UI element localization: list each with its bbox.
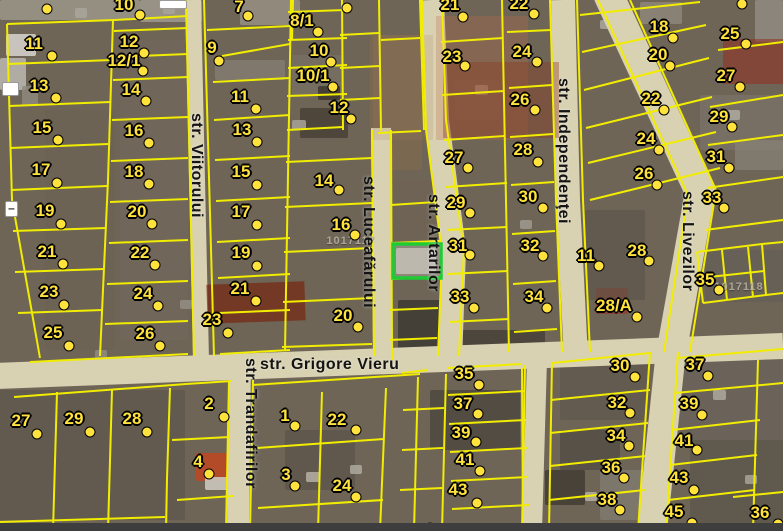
parcel-number-label: 34 (607, 426, 626, 446)
parcel-number-label: 21 (231, 279, 250, 299)
parcel-number-label: 36 (602, 458, 621, 478)
parcel-point-dot[interactable] (252, 261, 263, 272)
parcel-point-dot[interactable] (469, 303, 480, 314)
parcel-point-dot[interactable] (313, 27, 324, 38)
parcel-point-dot[interactable] (465, 208, 476, 219)
street-label: str. Viitorului (187, 113, 205, 218)
map-control[interactable] (2, 82, 19, 96)
parcel-point-dot[interactable] (223, 328, 234, 339)
parcel-point-dot[interactable] (689, 485, 700, 496)
parcel-point-dot[interactable] (214, 56, 225, 67)
parcel-number-label: 22 (642, 89, 661, 109)
parcel-number-label: 27 (445, 148, 464, 168)
parcel-point-dot[interactable] (625, 408, 636, 419)
parcel-point-dot[interactable] (474, 380, 485, 391)
parcel-number-label: 12/1 (107, 51, 140, 71)
parcel-point-dot[interactable] (703, 371, 714, 382)
parcel-number-label: 43 (449, 480, 468, 500)
parcel-number-label: 45 (665, 502, 684, 522)
parcel-point-dot[interactable] (141, 96, 152, 107)
parcel-number-label: 17 (232, 202, 251, 222)
parcel-number-label: 13 (30, 76, 49, 96)
map-control[interactable] (159, 0, 187, 9)
map-graphics-layer (0, 0, 783, 531)
parcel-number-label: 2 (204, 394, 213, 414)
parcel-number-label: 11 (25, 34, 43, 54)
parcel-number-label: 9 (207, 38, 216, 58)
parcel-point-dot[interactable] (475, 466, 486, 477)
parcel-number-label: 35 (696, 270, 715, 290)
parcel-point-dot[interactable] (53, 135, 64, 146)
parcel-point-dot[interactable] (219, 412, 230, 423)
parcel-number-label: 19 (36, 201, 55, 221)
parcel-point-dot[interactable] (42, 4, 53, 15)
parcel-number-label: 41 (456, 450, 475, 470)
parcel-point-dot[interactable] (665, 61, 676, 72)
street-label: str. Livezilor (678, 191, 696, 291)
parcel-number-label: 34 (525, 287, 544, 307)
parcel-number-label: 25 (721, 24, 740, 44)
parcel-point-dot[interactable] (144, 138, 155, 149)
parcel-point-dot[interactable] (465, 250, 476, 261)
parcel-number-label: 33 (451, 287, 470, 307)
parcel-point-dot[interactable] (594, 261, 605, 272)
parcel-number-label: 22 (131, 243, 150, 263)
parcel-point-dot[interactable] (32, 429, 43, 440)
parcel-point-dot[interactable] (251, 104, 262, 115)
parcel-point-dot[interactable] (714, 285, 725, 296)
parcel-number-label: 24 (333, 476, 352, 496)
parcel-point-dot[interactable] (615, 505, 626, 516)
parcel-point-dot[interactable] (727, 122, 738, 133)
parcel-number-label: 37 (454, 394, 473, 414)
parcel-point-dot[interactable] (51, 93, 62, 104)
parcel-number-label: 23 (40, 282, 59, 302)
parcel-point-dot[interactable] (155, 341, 166, 352)
parcel-point-dot[interactable] (532, 57, 543, 68)
parcel-number-label: 20 (128, 202, 147, 222)
parcel-number-label: 14 (122, 80, 141, 100)
parcel-point-dot[interactable] (150, 260, 161, 271)
parcel-point-dot[interactable] (47, 51, 58, 62)
parcel-point-dot[interactable] (529, 9, 540, 20)
parcel-point-dot[interactable] (735, 82, 746, 93)
parcel-point-dot[interactable] (56, 219, 67, 230)
parcel-point-dot[interactable] (147, 219, 158, 230)
parcel-point-dot[interactable] (252, 220, 263, 231)
parcel-point-dot[interactable] (458, 12, 469, 23)
parcel-point-dot[interactable] (668, 33, 679, 44)
parcel-point-dot[interactable] (542, 303, 553, 314)
parcel-number-label: 31 (707, 147, 726, 167)
parcel-number-label: 15 (232, 162, 251, 182)
parcel-point-dot[interactable] (290, 421, 301, 432)
highlighted-parcel (443, 62, 559, 138)
parcel-point-dot[interactable] (144, 179, 155, 190)
parcel-point-dot[interactable] (243, 11, 254, 22)
parcel-point-dot[interactable] (630, 372, 641, 383)
parcel-number-label: 43 (670, 468, 689, 488)
parcel-point-dot[interactable] (624, 441, 635, 452)
parcel-number-label: 3 (281, 465, 290, 485)
parcel-number-label: 10 (115, 0, 134, 15)
parcel-number-label: 27 (12, 411, 31, 431)
parcel-point-dot[interactable] (538, 203, 549, 214)
parcel-point-dot[interactable] (473, 409, 484, 420)
map-viewport[interactable]: 10171171017118 str. Viitoruluistr. Lucea… (0, 0, 783, 531)
parcel-number-label: 22 (328, 410, 347, 430)
parcel-point-dot[interactable] (153, 301, 164, 312)
parcel-point-dot[interactable] (290, 481, 301, 492)
parcel-number-label: 29 (447, 193, 466, 213)
parcel-number-label: 36 (751, 503, 770, 523)
parcel-point-dot[interactable] (460, 61, 471, 72)
street-label: str. Independenţei (554, 78, 572, 224)
parcel-number-label: 24 (134, 284, 153, 304)
parcel-point-dot[interactable] (530, 105, 541, 116)
parcel-point-dot[interactable] (353, 322, 364, 333)
parcel-number-label: 23 (203, 310, 222, 330)
parcel-number-label: 15 (33, 118, 52, 138)
parcel-number-label: 28 (123, 409, 142, 429)
street-label: str. Artarilor (424, 194, 442, 292)
parcel-point-dot[interactable] (741, 39, 752, 50)
parcel-point-dot[interactable] (334, 185, 345, 196)
parcel-point-dot[interactable] (471, 437, 482, 448)
parcel-point-dot[interactable] (632, 312, 643, 323)
parcel-number-label: 12 (120, 32, 139, 52)
parcel-number-label: 24 (513, 42, 532, 62)
parcel-number-label: 28/A (596, 296, 632, 316)
parcel-number-label: 39 (452, 423, 471, 443)
parcel-number-label: 19 (232, 243, 251, 263)
parcel-number-label: 30 (611, 356, 630, 376)
parcel-point-dot[interactable] (351, 492, 362, 503)
parcel-point-dot[interactable] (59, 300, 70, 311)
parcel-point-dot[interactable] (644, 256, 655, 267)
parcel-number-label: 32 (521, 236, 540, 256)
parcel-number-label: 26 (511, 90, 530, 110)
parcel-number-label: 18 (650, 17, 669, 37)
parcel-number-label: 13 (233, 120, 252, 140)
parcel-number-label: 10/1 (296, 66, 329, 86)
parcel-point-dot[interactable] (85, 427, 96, 438)
street-label: str. Trandafirilor (241, 358, 259, 489)
parcel-number-label: 39 (680, 394, 699, 414)
parcel-point-dot[interactable] (724, 163, 735, 174)
parcel-number-label: 38 (598, 490, 617, 510)
parcel-point-dot[interactable] (697, 410, 708, 421)
parcel-point-dot[interactable] (342, 3, 353, 14)
parcel-number-label: 26 (136, 324, 155, 344)
parcel-point-dot[interactable] (463, 163, 474, 174)
parcel-point-dot[interactable] (142, 427, 153, 438)
parcel-number-label: 21 (38, 242, 57, 262)
parcel-number-label: 8/1 (290, 11, 314, 31)
scale-bar: 1 : 1 982 0 50 m 100 m (0, 470, 230, 531)
parcel-number-label: 17 (32, 160, 51, 180)
parcel-number-label: 20 (334, 306, 353, 326)
parcel-point-dot[interactable] (719, 203, 730, 214)
parcel-number-label: 4 (193, 452, 202, 472)
parcel-number-label: 25 (44, 323, 63, 343)
parcel-point-dot[interactable] (52, 178, 63, 189)
parcel-number-label: 26 (635, 164, 654, 184)
parcel-number-label: 14 (315, 171, 334, 191)
parcel-point-dot[interactable] (58, 259, 69, 270)
parcel-number-label: 18 (125, 162, 144, 182)
parcel-number-label: 11 (231, 87, 249, 107)
parcel-point-dot[interactable] (654, 145, 665, 156)
parcel-point-dot[interactable] (252, 180, 263, 191)
parcel-point-dot[interactable] (346, 114, 357, 125)
parcel-point-dot[interactable] (619, 473, 630, 484)
parcel-number-label: 16 (332, 215, 351, 235)
parcel-number-label: 28 (514, 140, 533, 160)
parcel-point-dot[interactable] (538, 251, 549, 262)
parcel-number-label: 35 (455, 364, 474, 384)
parcel-point-dot[interactable] (138, 66, 149, 77)
street-label: str. Luceafărului (359, 176, 377, 308)
parcel-point-dot[interactable] (652, 180, 663, 191)
parcel-number-label: 16 (125, 121, 144, 141)
zoom-out-control[interactable]: – (5, 201, 18, 217)
parcel-number-label: 1 (280, 406, 289, 426)
parcel-point-dot[interactable] (328, 82, 339, 93)
parcel-number-label: 24 (637, 129, 656, 149)
parcel-number-label: 21 (441, 0, 460, 15)
parcel-number-label: 11 (577, 246, 595, 266)
parcel-point-dot[interactable] (64, 341, 75, 352)
street-label: str. Grigore Vieru (260, 356, 399, 374)
parcel-number-label: 27 (717, 66, 736, 86)
parcel-number-label: 29 (65, 409, 84, 429)
parcel-point-dot[interactable] (472, 498, 483, 509)
parcel-point-dot[interactable] (252, 137, 263, 148)
parcel-number-label: 37 (686, 355, 705, 375)
parcel-point-dot[interactable] (533, 157, 544, 168)
parcel-number-label: 22 (510, 0, 529, 14)
parcel-point-dot[interactable] (692, 445, 703, 456)
parcel-point-dot[interactable] (659, 105, 670, 116)
parcel-number-label: 32 (608, 393, 627, 413)
parcel-number-label: 30 (519, 187, 538, 207)
parcel-number-label: 29 (710, 107, 729, 127)
parcel-point-dot[interactable] (350, 230, 361, 241)
parcel-point-dot[interactable] (351, 425, 362, 436)
parcel-point-dot[interactable] (251, 296, 262, 307)
parcel-point-dot[interactable] (135, 10, 146, 21)
